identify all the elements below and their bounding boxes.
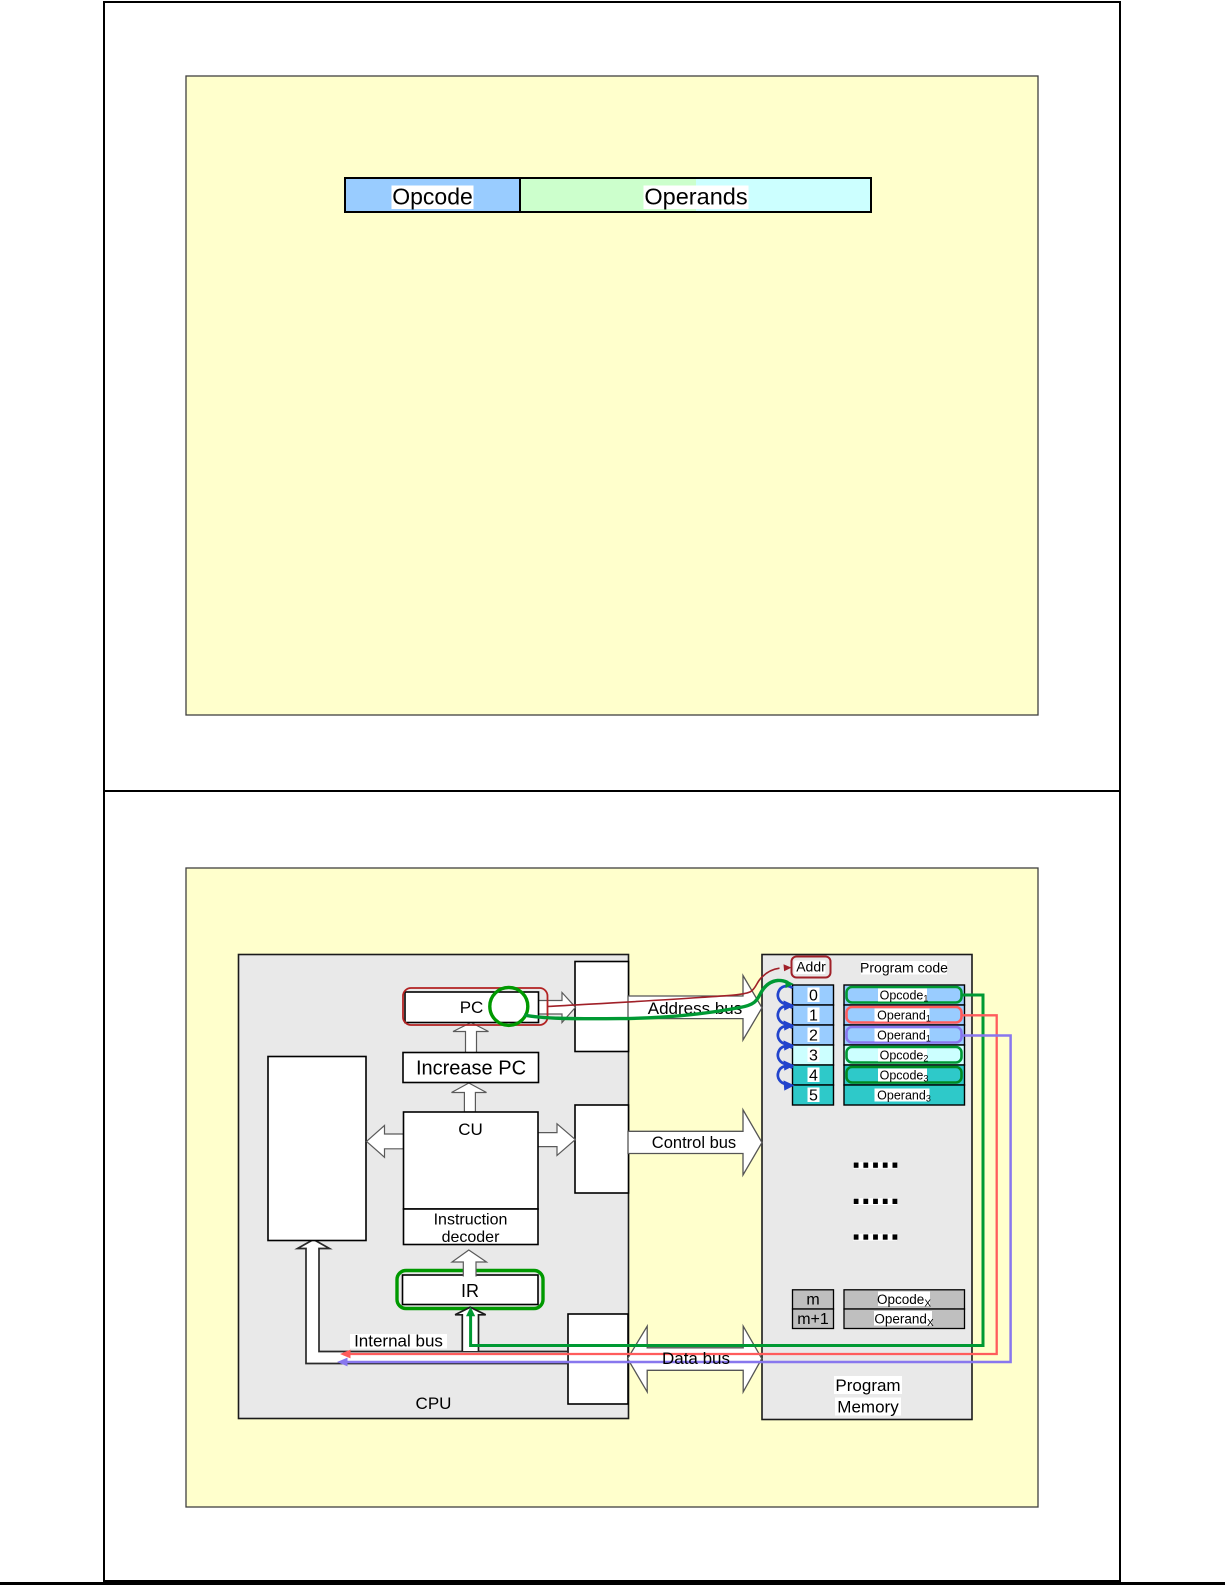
svg-text:Addr: Addr: [796, 959, 826, 975]
svg-text:0: 0: [809, 988, 818, 1005]
svg-text:Internal bus: Internal bus: [354, 1332, 443, 1351]
svg-text:m+1: m+1: [797, 1311, 829, 1328]
svg-text:4: 4: [809, 1068, 818, 1085]
svg-text:Opcode1: Opcode1: [880, 989, 929, 1004]
svg-text:IR: IR: [461, 1281, 479, 1301]
svg-text:Opcode3: Opcode3: [880, 1069, 929, 1084]
svg-text:Increase PC: Increase PC: [416, 1058, 526, 1080]
svg-text:Memory: Memory: [837, 1398, 899, 1417]
svg-text:Opcode2: Opcode2: [880, 1049, 929, 1064]
svg-text:3: 3: [809, 1048, 818, 1065]
svg-text:5: 5: [809, 1088, 818, 1105]
svg-text:OpcodeX: OpcodeX: [877, 1292, 931, 1310]
svg-text:Instruction: Instruction: [434, 1212, 508, 1229]
svg-text:Program: Program: [835, 1376, 900, 1395]
svg-text:1: 1: [809, 1008, 818, 1025]
svg-text:OperandX: OperandX: [874, 1312, 934, 1330]
svg-text:Operand1: Operand1: [877, 1009, 931, 1024]
svg-text:CU: CU: [458, 1120, 483, 1139]
svg-text:Data bus: Data bus: [662, 1349, 730, 1368]
svg-text:decoder: decoder: [442, 1229, 500, 1246]
svg-text:Program code: Program code: [860, 960, 948, 976]
svg-text:CPU: CPU: [416, 1394, 452, 1413]
svg-text:2: 2: [809, 1028, 818, 1045]
svg-text:Control bus: Control bus: [652, 1134, 736, 1152]
svg-text:PC: PC: [460, 998, 484, 1017]
svg-text:Operands: Operands: [644, 184, 747, 210]
svg-text:m: m: [806, 1292, 819, 1309]
svg-text:Operand1: Operand1: [877, 1029, 931, 1044]
svg-text:Operand3: Operand3: [877, 1089, 931, 1104]
svg-text:Opcode: Opcode: [392, 184, 473, 210]
